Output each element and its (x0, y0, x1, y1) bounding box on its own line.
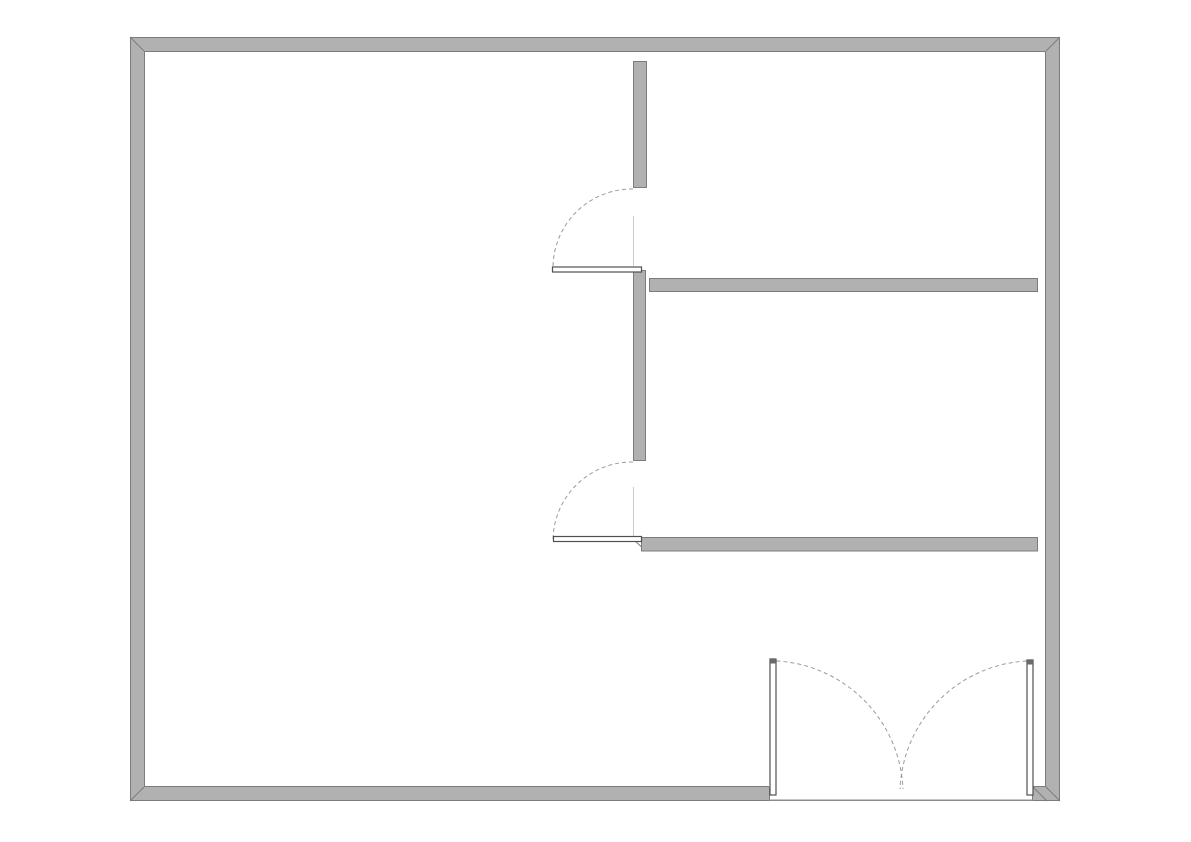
entry-door-right-swing-arc (900, 661, 1027, 789)
partition-wall-upper (634, 62, 647, 188)
entry-door-left-swing-arc (777, 661, 904, 789)
floor-plan-page (0, 0, 1191, 842)
floor-plan-canvas (0, 0, 1191, 842)
hall-wall-lower (642, 538, 1038, 552)
entry-door-right-leaf (1027, 660, 1033, 795)
door-1-leaf (553, 267, 642, 272)
outer-wall-top (130, 37, 1060, 51)
door-2-swing-arc (553, 462, 633, 541)
outer-wall-bottom-right (1033, 787, 1060, 801)
entry-door-left-leaf (770, 659, 776, 795)
outer-wall-right (1046, 37, 1060, 801)
door-1-swing-arc (553, 189, 633, 268)
hall-wall-upper (650, 279, 1038, 292)
entry-door-right-leaf-cap (1027, 660, 1033, 665)
entry-door-left-leaf-cap (770, 659, 776, 664)
partition-wall-middle (634, 271, 646, 461)
outer-wall-left (130, 37, 144, 801)
door-2-leaf (554, 537, 642, 542)
outer-wall-outer-contour (131, 38, 1060, 801)
outer-wall-bottom-left (130, 787, 769, 801)
